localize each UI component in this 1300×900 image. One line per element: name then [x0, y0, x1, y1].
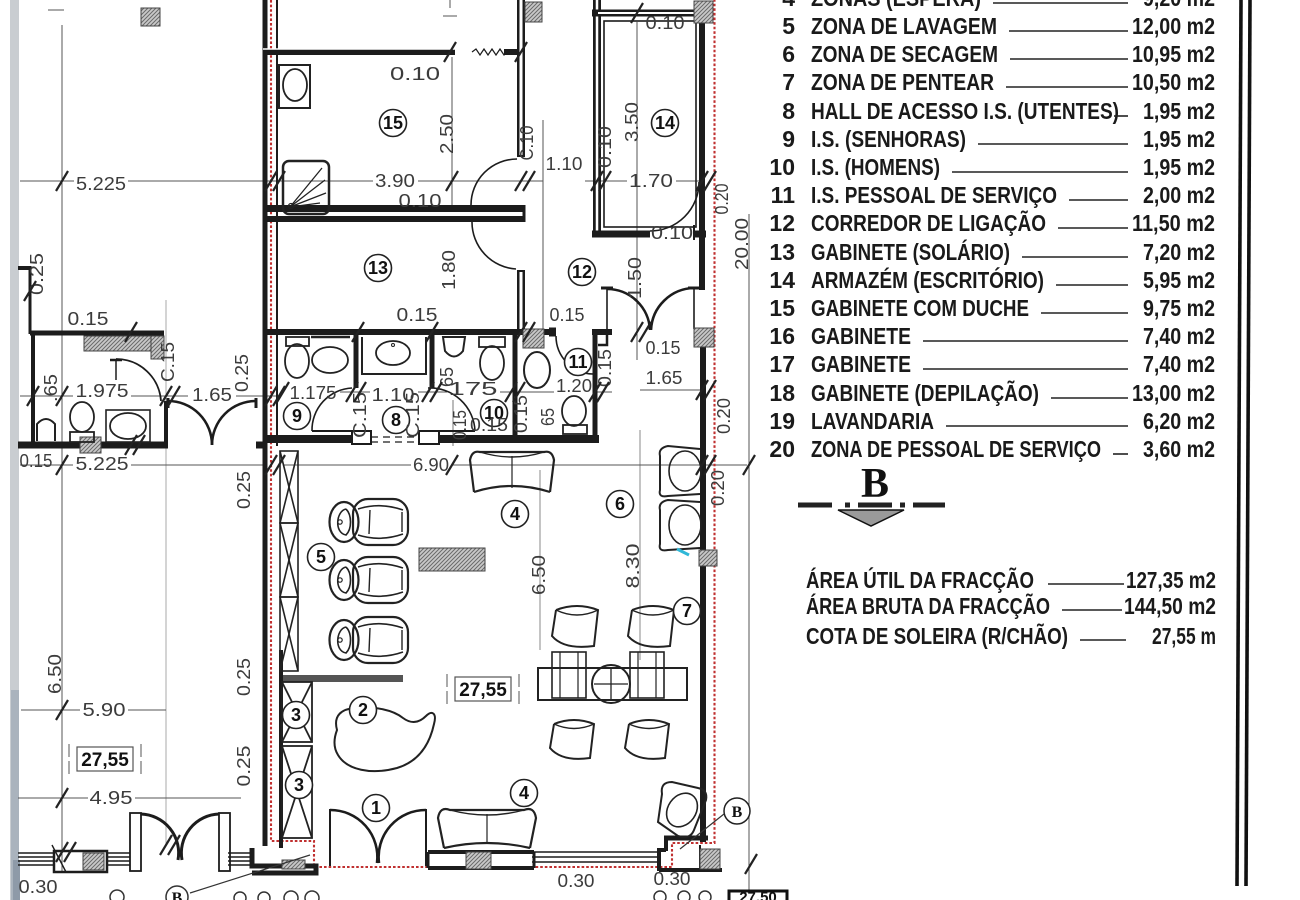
svg-text:B: B — [732, 804, 743, 821]
svg-text:13: 13 — [769, 239, 795, 265]
svg-text:8.30: 8.30 — [623, 544, 643, 589]
svg-text:65: 65 — [538, 408, 558, 426]
svg-text:3: 3 — [291, 705, 301, 725]
svg-text:6,20 m2: 6,20 m2 — [1143, 408, 1215, 434]
svg-text:5.90: 5.90 — [83, 700, 126, 720]
svg-text:8: 8 — [782, 98, 795, 124]
svg-text:0.10: 0.10 — [646, 13, 685, 33]
svg-text:0.25: 0.25 — [27, 253, 47, 295]
svg-text:0.15: 0.15 — [595, 349, 615, 387]
svg-text:9: 9 — [782, 126, 795, 152]
svg-text:2,00 m2: 2,00 m2 — [1143, 182, 1215, 208]
svg-text:15: 15 — [383, 113, 403, 133]
svg-text:1.65: 1.65 — [646, 368, 683, 388]
svg-text:27,50: 27,50 — [739, 889, 777, 900]
svg-text:4: 4 — [782, 0, 795, 11]
svg-text:20.00: 20.00 — [732, 218, 752, 270]
svg-text:10,95 m2: 10,95 m2 — [1132, 41, 1215, 67]
svg-text:6: 6 — [615, 494, 625, 514]
svg-text:7,40 m2: 7,40 m2 — [1143, 323, 1215, 349]
svg-text:0.20: 0.20 — [714, 398, 734, 434]
svg-text:144,50 m2: 144,50 m2 — [1124, 593, 1216, 619]
svg-text:0.15: 0.15 — [450, 410, 470, 440]
svg-text:0.15: 0.15 — [68, 309, 109, 329]
svg-text:10: 10 — [769, 154, 795, 180]
svg-text:C.15: C.15 — [403, 392, 423, 438]
svg-text:6.50: 6.50 — [45, 654, 65, 694]
svg-text:3: 3 — [294, 775, 304, 795]
svg-text:3.90: 3.90 — [375, 171, 415, 191]
svg-text:I.S. PESSOAL DE SERVIÇO: I.S. PESSOAL DE SERVIÇO — [811, 182, 1057, 208]
svg-text:4.95: 4.95 — [90, 788, 133, 808]
svg-text:ÁREA ÚTIL DA FRACÇÃO: ÁREA ÚTIL DA FRACÇÃO — [806, 566, 1034, 593]
svg-text:5.225: 5.225 — [76, 454, 129, 474]
svg-text:12: 12 — [769, 210, 795, 236]
svg-text:ZONAS (ESPERA): ZONAS (ESPERA) — [811, 0, 981, 11]
svg-text:0.30: 0.30 — [654, 869, 691, 889]
svg-text:0.25: 0.25 — [234, 471, 254, 509]
svg-text:I.S. (HOMENS): I.S. (HOMENS) — [811, 154, 940, 180]
svg-text:5.225: 5.225 — [76, 174, 126, 194]
svg-text:16: 16 — [769, 323, 795, 349]
svg-text:27,55: 27,55 — [459, 680, 507, 701]
svg-text:C.10: C.10 — [517, 126, 537, 161]
svg-text:10,50 m2: 10,50 m2 — [1132, 69, 1215, 95]
svg-text:0.25: 0.25 — [232, 354, 252, 392]
svg-text:ZONA DE LAVAGEM: ZONA DE LAVAGEM — [811, 13, 997, 39]
svg-text:GABINETE (SOLÁRIO): GABINETE (SOLÁRIO) — [811, 238, 1010, 265]
svg-text:27,55 m: 27,55 m — [1152, 623, 1216, 649]
svg-text:GABINETE: GABINETE — [811, 351, 911, 377]
svg-text:20: 20 — [769, 436, 795, 462]
svg-text:7,20 m2: 7,20 m2 — [1143, 239, 1215, 265]
svg-text:1.10: 1.10 — [546, 154, 583, 174]
svg-text:7,40 m2: 7,40 m2 — [1143, 351, 1215, 377]
svg-text:1.65: 1.65 — [192, 385, 232, 405]
svg-text:ÁREA BRUTA DA FRACÇÃO: ÁREA BRUTA DA FRACÇÃO — [806, 592, 1050, 619]
svg-text:7: 7 — [782, 69, 795, 95]
svg-text:1,95 m2: 1,95 m2 — [1143, 98, 1215, 124]
svg-text:0.10: 0.10 — [595, 126, 615, 168]
svg-text:GABINETE COM DUCHE: GABINETE COM DUCHE — [811, 295, 1029, 321]
svg-text:2.50: 2.50 — [437, 114, 457, 154]
svg-text:1: 1 — [371, 798, 381, 818]
svg-text:11: 11 — [771, 182, 796, 208]
svg-text:11: 11 — [568, 352, 587, 372]
svg-text:C.15: C.15 — [158, 342, 178, 382]
svg-text:9,75 m2: 9,75 m2 — [1143, 295, 1215, 321]
svg-text:19: 19 — [769, 408, 795, 434]
svg-text:1.20: 1.20 — [556, 376, 592, 396]
svg-text:.65: .65 — [41, 374, 61, 402]
svg-text:C.15: C.15 — [350, 392, 370, 438]
svg-text:I.S. (SENHORAS): I.S. (SENHORAS) — [811, 126, 966, 152]
svg-text:5: 5 — [782, 13, 795, 39]
svg-text:B: B — [172, 890, 183, 900]
svg-text:0.10: 0.10 — [399, 191, 442, 211]
svg-text:3.50: 3.50 — [622, 102, 642, 142]
svg-text:3,60 m2: 3,60 m2 — [1143, 436, 1215, 462]
svg-text:12: 12 — [572, 262, 592, 282]
svg-text:13: 13 — [368, 258, 388, 278]
svg-text:B: B — [861, 461, 889, 507]
svg-text:5,95 m2: 5,95 m2 — [1143, 267, 1215, 293]
svg-text:12,00 m2: 12,00 m2 — [1132, 13, 1215, 39]
svg-text:9,20 m2: 9,20 m2 — [1143, 0, 1215, 11]
svg-text:0.30: 0.30 — [19, 877, 58, 897]
svg-text:1.70: 1.70 — [629, 171, 673, 191]
svg-text:GABINETE: GABINETE — [811, 323, 911, 349]
svg-text:14: 14 — [769, 267, 795, 293]
svg-text:1,95 m2: 1,95 m2 — [1143, 154, 1215, 180]
svg-text:LAVANDARIA: LAVANDARIA — [811, 408, 934, 434]
svg-text:0.15: 0.15 — [470, 415, 508, 435]
svg-text:13,00 m2: 13,00 m2 — [1132, 380, 1215, 406]
svg-text:0.15: 0.15 — [20, 451, 53, 471]
svg-text:ZONA DE PENTEAR: ZONA DE PENTEAR — [811, 69, 994, 95]
svg-text:1.975: 1.975 — [76, 381, 129, 401]
svg-text:18: 18 — [769, 380, 795, 406]
svg-text:15: 15 — [769, 295, 795, 321]
svg-text:0.15: 0.15 — [550, 305, 585, 325]
svg-text:127,35 m2: 127,35 m2 — [1126, 567, 1216, 593]
svg-text:6.50: 6.50 — [529, 555, 549, 595]
svg-text:2: 2 — [358, 700, 368, 720]
svg-text:0.25: 0.25 — [234, 658, 254, 696]
svg-text:17: 17 — [769, 351, 795, 377]
svg-text:14: 14 — [655, 113, 675, 133]
svg-text:0.10: 0.10 — [651, 223, 693, 243]
svg-text:8: 8 — [391, 410, 401, 430]
svg-text:9: 9 — [292, 406, 302, 426]
svg-text:0.15: 0.15 — [397, 305, 438, 325]
svg-text:6.90: 6.90 — [413, 455, 449, 475]
svg-text:0.20: 0.20 — [712, 184, 732, 215]
svg-text:HALL DE ACESSO I.S. (UTENTES): HALL DE ACESSO I.S. (UTENTES) — [811, 98, 1119, 124]
svg-text:11,50 m2: 11,50 m2 — [1132, 210, 1215, 236]
svg-text:ZONA DE PESSOAL DE SERVIÇO: ZONA DE PESSOAL DE SERVIÇO — [811, 436, 1101, 462]
svg-text:1.50: 1.50 — [625, 257, 645, 299]
svg-text:6: 6 — [782, 41, 795, 67]
svg-text:ZONA DE SECAGEM: ZONA DE SECAGEM — [811, 41, 998, 67]
svg-text:1.175: 1.175 — [290, 383, 337, 403]
svg-text:0.10: 0.10 — [390, 64, 440, 84]
svg-text:1.80: 1.80 — [439, 250, 459, 290]
svg-text:4: 4 — [510, 504, 520, 524]
svg-text:0.25: 0.25 — [234, 746, 254, 787]
svg-text:4: 4 — [519, 783, 529, 803]
svg-text:27,55: 27,55 — [81, 750, 129, 771]
svg-text:CORREDOR DE LIGAÇÃO: CORREDOR DE LIGAÇÃO — [811, 209, 1046, 236]
svg-text:COTA DE SOLEIRA (R/CHÃO): COTA DE SOLEIRA (R/CHÃO) — [806, 622, 1068, 649]
svg-text:0.20: 0.20 — [708, 470, 728, 506]
svg-text:0.30: 0.30 — [558, 871, 595, 891]
svg-text:ARMAZÉM (ESCRITÓRIO): ARMAZÉM (ESCRITÓRIO) — [811, 266, 1044, 293]
svg-text:7: 7 — [682, 601, 692, 621]
svg-text:5: 5 — [316, 547, 326, 567]
svg-text:0.15: 0.15 — [646, 338, 681, 358]
svg-text:GABINETE (DEPILAÇÃO): GABINETE (DEPILAÇÃO) — [811, 379, 1039, 406]
svg-text:1,95 m2: 1,95 m2 — [1143, 126, 1215, 152]
